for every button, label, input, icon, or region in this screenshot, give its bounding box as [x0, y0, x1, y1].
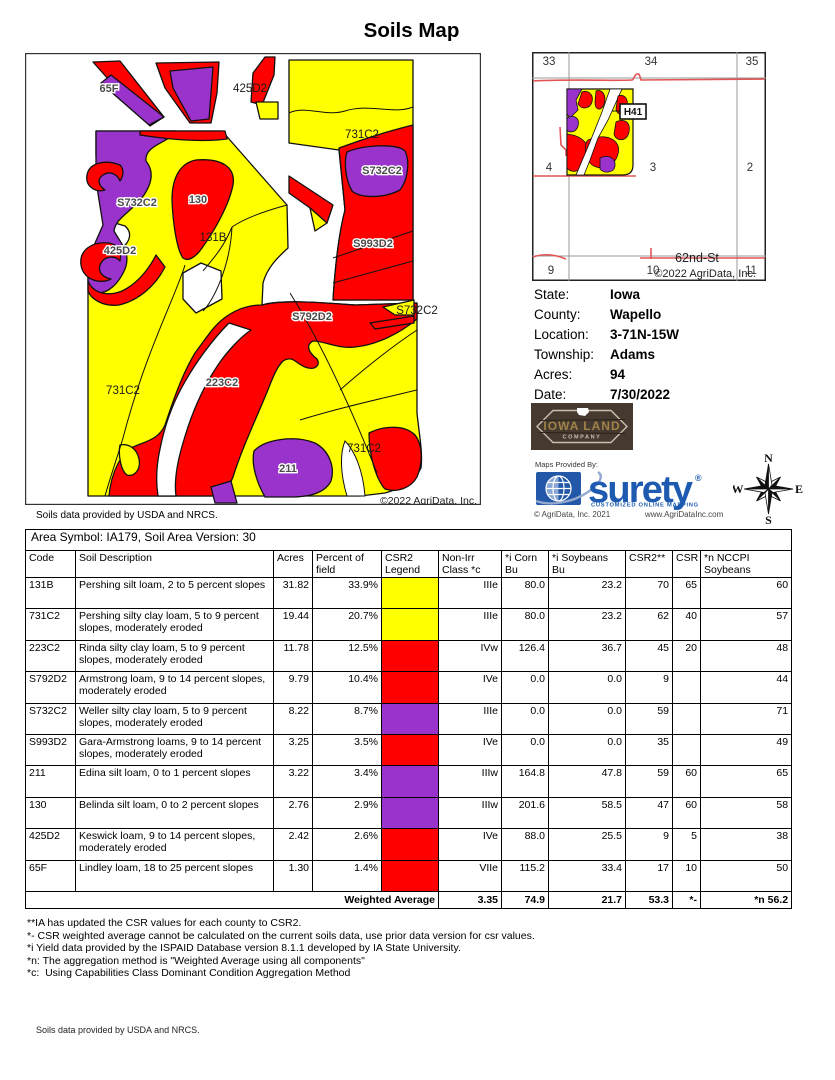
- svg-text:H41: H41: [624, 107, 643, 118]
- svg-text:211: 211: [279, 463, 297, 475]
- svg-text:S792D2: S792D2: [292, 311, 332, 323]
- svg-text:COMPANY: COMPANY: [563, 435, 602, 441]
- svg-text:33: 33: [543, 56, 556, 68]
- svg-text:731C2: 731C2: [106, 385, 140, 397]
- svg-text:9: 9: [548, 265, 554, 277]
- svg-text:©2022 AgriData, Inc.: ©2022 AgriData, Inc.: [654, 268, 756, 280]
- svg-text:425D2: 425D2: [233, 83, 267, 95]
- svg-text:131B: 131B: [200, 232, 227, 244]
- svg-text:CUSTOMIZED ONLINE MAPPING: CUSTOMIZED ONLINE MAPPING: [591, 503, 699, 509]
- svg-text:S732C2: S732C2: [362, 165, 402, 177]
- svg-text:www.AgriDataInc.com: www.AgriDataInc.com: [644, 510, 724, 519]
- svg-text:© AgriData, Inc. 2021: © AgriData, Inc. 2021: [534, 510, 611, 519]
- svg-text:S732C2: S732C2: [396, 305, 438, 317]
- svg-text:®: ®: [695, 473, 702, 483]
- svg-text:35: 35: [746, 56, 759, 68]
- svg-text:S: S: [765, 513, 772, 526]
- svg-text:S993D2: S993D2: [353, 238, 393, 250]
- svg-text:65F: 65F: [100, 83, 119, 95]
- svg-text:425D2: 425D2: [104, 245, 136, 257]
- svg-text:W: W: [733, 482, 744, 496]
- svg-text:4: 4: [546, 162, 553, 174]
- svg-text:N: N: [764, 452, 773, 465]
- svg-text:223C2: 223C2: [206, 377, 238, 389]
- svg-text:731C2: 731C2: [347, 443, 381, 455]
- svg-text:©2022 AgriData, Inc.: ©2022 AgriData, Inc.: [380, 495, 477, 505]
- svg-text:62nd-St: 62nd-St: [675, 251, 719, 265]
- svg-text:34: 34: [645, 56, 658, 68]
- svg-text:731C2: 731C2: [345, 129, 379, 141]
- svg-text:E: E: [795, 482, 803, 496]
- svg-text:130: 130: [189, 194, 207, 206]
- svg-text:2: 2: [747, 162, 753, 174]
- svg-text:S732C2: S732C2: [117, 197, 157, 209]
- svg-text:3: 3: [650, 162, 656, 174]
- svg-text:IOWA LAND: IOWA LAND: [543, 419, 620, 433]
